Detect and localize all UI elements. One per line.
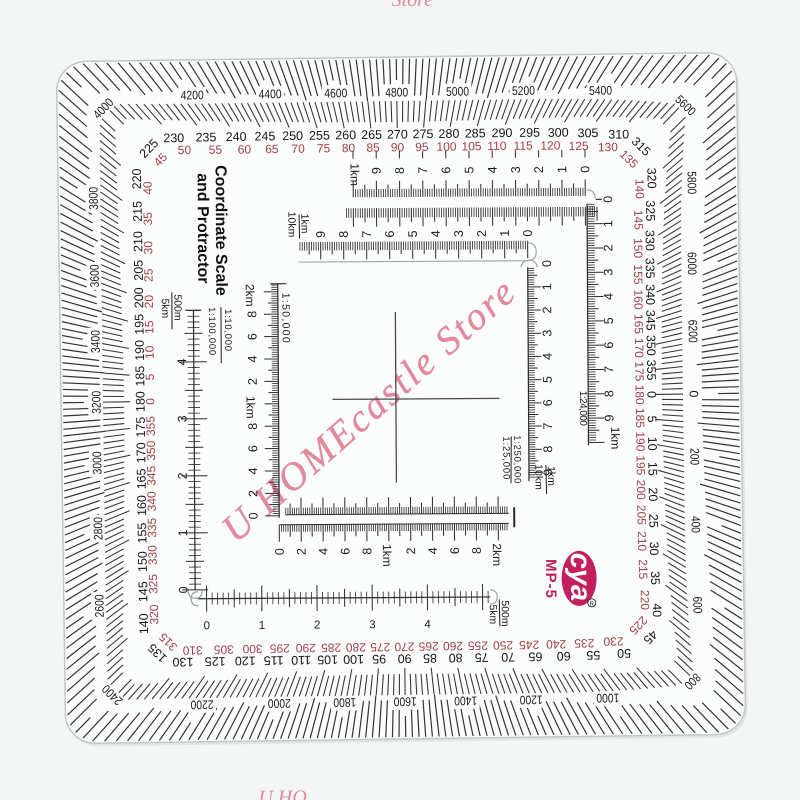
svg-text:1:50,000: 1:50,000 (279, 293, 291, 343)
svg-text:0: 0 (540, 260, 554, 267)
svg-text:1600: 1600 (394, 694, 417, 708)
svg-text:1km: 1km (298, 214, 310, 234)
svg-text:115: 115 (514, 139, 534, 153)
svg-text:230: 230 (603, 634, 624, 648)
svg-text:10: 10 (143, 345, 157, 359)
svg-text:0: 0 (601, 196, 615, 203)
svg-text:25: 25 (141, 268, 155, 282)
svg-text:190: 190 (633, 431, 647, 452)
svg-text:40: 40 (141, 181, 155, 195)
svg-text:265: 265 (418, 639, 439, 653)
svg-text:10km: 10km (532, 464, 544, 490)
svg-text:105: 105 (461, 139, 482, 153)
svg-text:2: 2 (246, 490, 260, 497)
svg-text:5km: 5km (159, 298, 171, 318)
svg-text:175: 175 (632, 361, 646, 382)
svg-text:270: 270 (394, 640, 415, 654)
svg-text:U HO: U HO (258, 787, 306, 800)
svg-text:240: 240 (546, 637, 567, 651)
svg-text:2: 2 (404, 547, 418, 554)
svg-text:205: 205 (634, 505, 648, 526)
svg-text:8: 8 (541, 446, 555, 453)
svg-text:0: 0 (143, 398, 157, 405)
svg-text:1km: 1km (545, 466, 557, 486)
svg-text:305: 305 (213, 642, 234, 656)
svg-text:6: 6 (245, 333, 259, 340)
svg-text:R: R (589, 600, 594, 607)
svg-text:75: 75 (317, 141, 331, 155)
svg-text:10km: 10km (285, 212, 297, 238)
svg-text:4: 4 (424, 619, 431, 631)
svg-text:60: 60 (238, 142, 252, 156)
svg-text:320: 320 (147, 604, 161, 625)
svg-text:130: 130 (598, 140, 619, 154)
svg-text:55: 55 (209, 143, 223, 157)
svg-text:330: 330 (145, 545, 159, 566)
svg-text:155: 155 (631, 264, 645, 285)
svg-text:5: 5 (602, 317, 616, 324)
svg-text:200: 200 (634, 480, 648, 501)
svg-text:1km: 1km (243, 396, 257, 419)
svg-text:345: 345 (144, 465, 158, 486)
svg-text:4: 4 (541, 353, 555, 360)
svg-text:2km: 2km (243, 284, 257, 307)
svg-text:and Protractor: and Protractor (194, 173, 212, 283)
svg-text:50: 50 (178, 143, 192, 157)
svg-text:3600: 3600 (88, 264, 102, 287)
svg-text:9: 9 (370, 167, 384, 174)
svg-text:1:25,000: 1:25,000 (500, 436, 511, 479)
svg-text:7: 7 (360, 231, 374, 238)
svg-text:1: 1 (498, 230, 512, 237)
svg-text:5: 5 (462, 167, 476, 174)
svg-text:3400: 3400 (89, 330, 103, 353)
svg-text:65: 65 (265, 142, 279, 156)
svg-text:2000: 2000 (268, 696, 291, 710)
svg-text:6: 6 (383, 230, 397, 237)
svg-text:8: 8 (470, 547, 484, 554)
svg-text:6000: 6000 (685, 252, 699, 275)
svg-text:275: 275 (370, 640, 391, 654)
svg-text:2: 2 (475, 230, 489, 237)
svg-text:165: 165 (632, 314, 646, 335)
svg-text:30: 30 (141, 241, 155, 255)
svg-text:5: 5 (143, 373, 157, 380)
svg-text:1200: 1200 (519, 692, 542, 706)
svg-text:150: 150 (631, 238, 645, 259)
svg-text:0: 0 (246, 512, 260, 519)
svg-text:6: 6 (602, 342, 616, 349)
svg-text:220: 220 (638, 590, 652, 611)
svg-text:3800: 3800 (87, 187, 101, 210)
svg-text:5km: 5km (487, 604, 499, 624)
svg-text:6: 6 (338, 548, 352, 555)
svg-text:3: 3 (509, 166, 523, 173)
svg-text:1: 1 (601, 220, 615, 227)
svg-text:3: 3 (369, 619, 375, 631)
svg-text:215: 215 (636, 559, 650, 580)
svg-text:80: 80 (342, 141, 356, 155)
svg-text:250: 250 (493, 638, 514, 652)
svg-text:7: 7 (416, 167, 430, 174)
svg-text:350: 350 (144, 440, 158, 461)
svg-text:5800: 5800 (684, 171, 698, 194)
svg-text:9: 9 (602, 414, 616, 421)
svg-text:355: 355 (144, 416, 158, 437)
svg-text:8: 8 (602, 390, 616, 397)
svg-text:6: 6 (439, 167, 453, 174)
svg-text:4400: 4400 (258, 87, 281, 101)
svg-text:140: 140 (632, 179, 646, 200)
svg-text:180: 180 (633, 385, 647, 406)
svg-text:35: 35 (141, 212, 155, 226)
svg-text:8: 8 (245, 311, 259, 318)
svg-text:4: 4 (486, 166, 500, 173)
svg-text:500m: 500m (499, 600, 511, 627)
svg-text:1800: 1800 (333, 695, 356, 709)
svg-text:7: 7 (541, 422, 555, 429)
svg-text:285: 285 (321, 641, 342, 655)
svg-text:2: 2 (295, 548, 309, 555)
svg-text:3: 3 (452, 230, 466, 237)
svg-text:245: 245 (519, 638, 540, 652)
svg-text:185: 185 (633, 408, 647, 429)
svg-text:3000: 3000 (90, 451, 104, 474)
svg-text:1km: 1km (608, 427, 622, 450)
svg-text:1: 1 (540, 283, 554, 290)
svg-text:3: 3 (540, 330, 554, 337)
svg-text:1:100,000: 1:100,000 (206, 307, 217, 355)
svg-text:4: 4 (175, 358, 189, 365)
svg-text:1:250,000: 1:250,000 (511, 435, 522, 483)
svg-text:2: 2 (246, 378, 260, 385)
svg-text:260: 260 (443, 639, 464, 653)
svg-text:6200: 6200 (686, 320, 700, 343)
svg-text:8: 8 (360, 548, 374, 555)
svg-text:2200: 2200 (190, 697, 213, 711)
svg-text:1km: 1km (380, 544, 394, 567)
svg-text:7: 7 (602, 366, 616, 373)
svg-text:2: 2 (532, 166, 546, 173)
svg-text:cya: cya (564, 553, 596, 602)
svg-text:4: 4 (246, 468, 260, 475)
svg-text:145: 145 (631, 210, 645, 231)
svg-text:8: 8 (246, 423, 260, 430)
svg-text:0: 0 (578, 166, 592, 173)
svg-text:6: 6 (246, 445, 260, 452)
svg-text:8: 8 (337, 231, 351, 238)
svg-text:3200: 3200 (89, 391, 103, 414)
svg-text:1:10,000: 1:10,000 (222, 309, 233, 351)
svg-text:3: 3 (602, 269, 616, 276)
svg-text:2km: 2km (490, 543, 504, 566)
svg-text:4: 4 (246, 356, 260, 363)
svg-text:1: 1 (259, 620, 265, 632)
svg-text:85: 85 (366, 141, 380, 155)
svg-text:210: 210 (635, 531, 649, 552)
svg-text:20: 20 (142, 295, 156, 309)
svg-text:2800: 2800 (91, 517, 105, 540)
svg-text:95: 95 (415, 140, 429, 154)
svg-text:2: 2 (314, 619, 320, 631)
svg-text:0: 0 (204, 620, 210, 632)
svg-text:295: 295 (269, 641, 290, 655)
svg-text:90: 90 (391, 140, 405, 154)
svg-text:2600: 2600 (92, 594, 106, 617)
svg-text:5: 5 (406, 230, 420, 237)
svg-text:Coordinate Scale: Coordinate Scale (212, 165, 230, 296)
svg-text:1km: 1km (348, 163, 362, 186)
svg-text:Store: Store (391, 0, 433, 11)
svg-text:2: 2 (601, 244, 615, 251)
svg-text:5400: 5400 (589, 84, 612, 98)
svg-text:335: 335 (145, 517, 159, 538)
svg-text:600: 600 (690, 596, 704, 613)
svg-text:1400: 1400 (454, 693, 477, 707)
svg-text:170: 170 (632, 338, 646, 359)
svg-text:0: 0 (273, 548, 287, 555)
svg-text:120: 120 (540, 138, 561, 152)
svg-text:100: 100 (436, 139, 457, 153)
svg-text:1: 1 (176, 529, 190, 536)
svg-text:1000: 1000 (596, 691, 619, 705)
svg-text:255: 255 (467, 639, 488, 653)
svg-text:5000: 5000 (446, 85, 469, 99)
svg-text:1:24,000: 1:24,000 (577, 391, 588, 427)
svg-text:310: 310 (182, 643, 203, 657)
svg-text:0: 0 (521, 230, 535, 237)
svg-text:125: 125 (568, 139, 589, 153)
svg-text:3: 3 (175, 415, 189, 422)
svg-text:6: 6 (448, 547, 462, 554)
svg-text:340: 340 (145, 491, 159, 512)
svg-text:6: 6 (541, 399, 555, 406)
svg-text:15: 15 (142, 320, 156, 334)
svg-text:235: 235 (574, 636, 595, 650)
svg-text:4: 4 (317, 548, 331, 555)
svg-text:2: 2 (540, 306, 554, 313)
svg-text:0: 0 (687, 390, 701, 397)
svg-text:4: 4 (602, 293, 616, 300)
svg-text:500m: 500m (171, 294, 183, 321)
svg-text:9: 9 (314, 231, 328, 238)
svg-text:70: 70 (291, 142, 305, 156)
svg-text:4800: 4800 (385, 85, 408, 99)
svg-text:4200: 4200 (181, 88, 204, 102)
svg-text:1: 1 (555, 166, 569, 173)
svg-text:4: 4 (426, 547, 440, 554)
svg-text:5: 5 (541, 376, 555, 383)
svg-text:8: 8 (393, 167, 407, 174)
svg-text:300: 300 (242, 642, 263, 656)
svg-text:325: 325 (146, 574, 160, 595)
svg-text:290: 290 (295, 641, 316, 655)
svg-text:195: 195 (634, 455, 648, 476)
svg-text:110: 110 (487, 139, 507, 153)
svg-text:2: 2 (176, 472, 190, 479)
svg-text:MP-5: MP-5 (542, 559, 559, 599)
svg-text:400: 400 (688, 516, 702, 533)
svg-text:4: 4 (429, 230, 443, 237)
svg-text:5200: 5200 (512, 84, 535, 98)
svg-text:280: 280 (345, 640, 366, 654)
svg-text:160: 160 (631, 289, 645, 310)
svg-text:4600: 4600 (324, 86, 347, 100)
svg-text:200: 200 (687, 448, 701, 465)
